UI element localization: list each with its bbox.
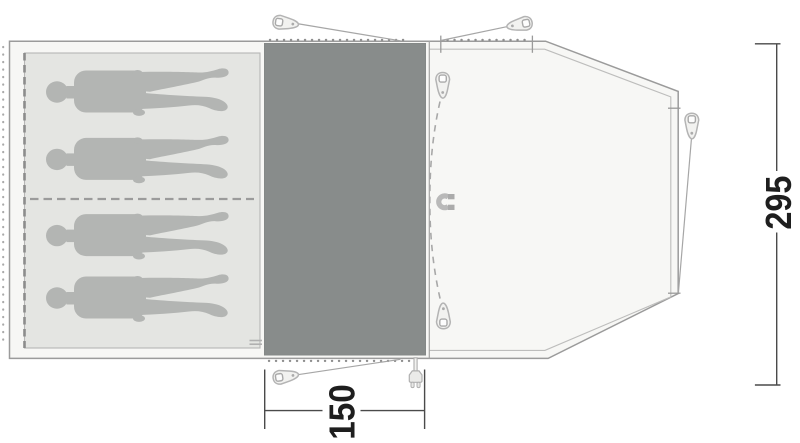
svg-text:150: 150 — [322, 384, 363, 440]
svg-text:295: 295 — [758, 176, 799, 230]
